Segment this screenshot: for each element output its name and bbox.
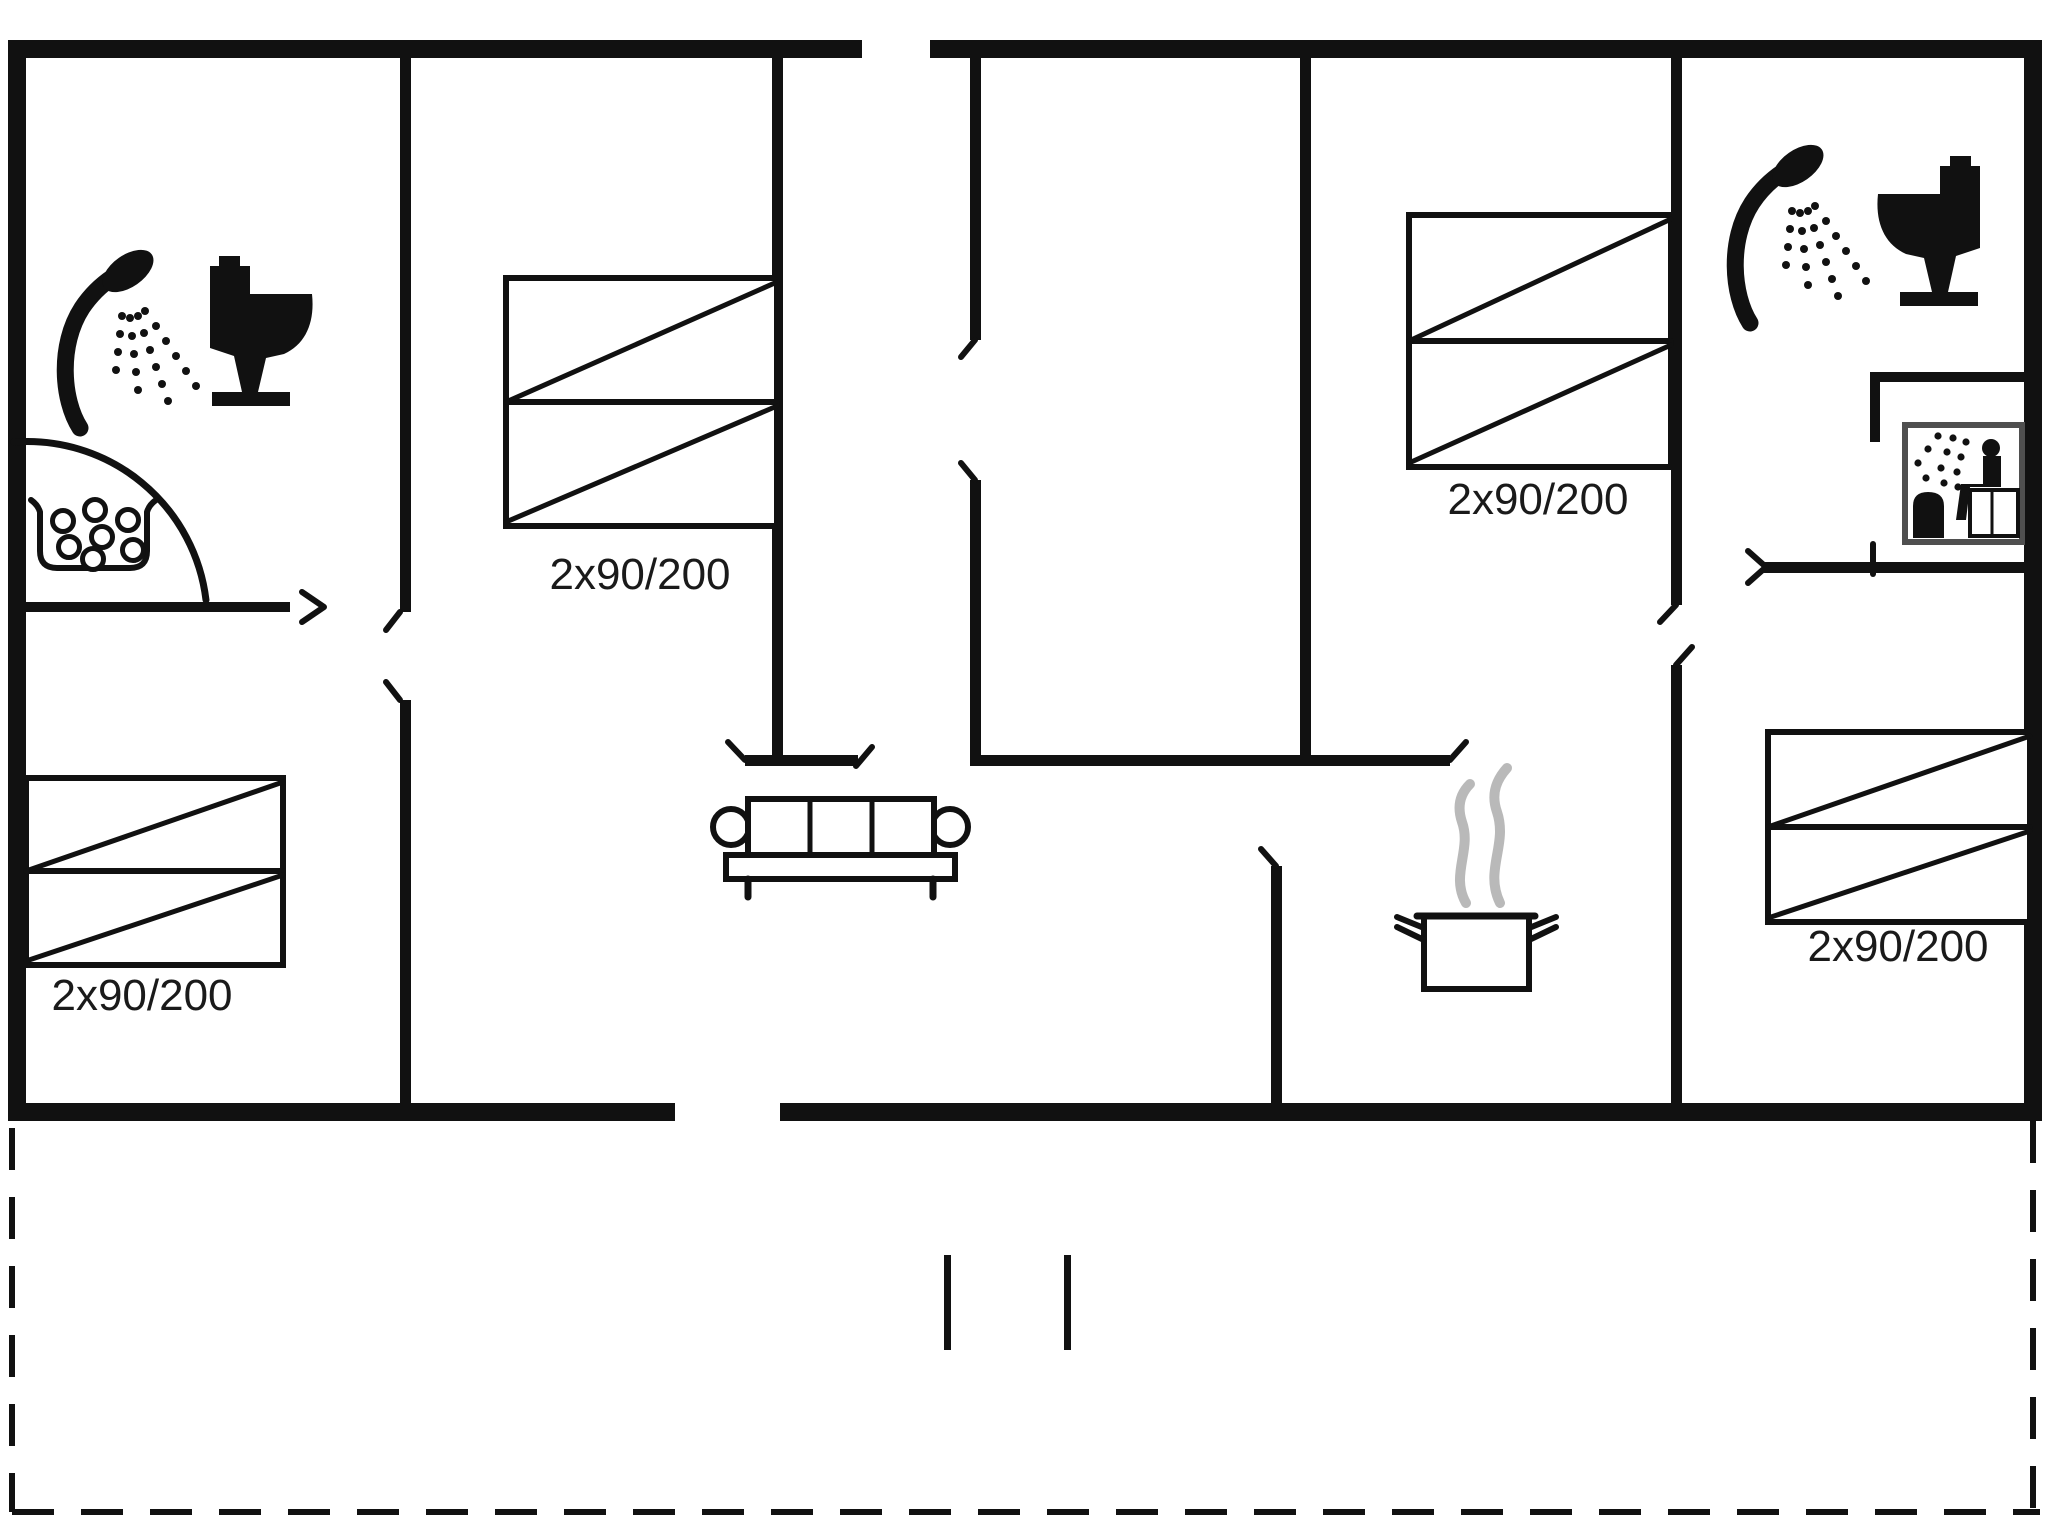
outer-wall-right xyxy=(2024,40,2042,1121)
outer-wall-top-left-segment xyxy=(8,40,862,58)
door-jamb-tick xyxy=(1748,551,1766,583)
door-jamb-tick xyxy=(1261,849,1276,866)
door-jamb-tick xyxy=(1450,742,1466,760)
bed-size-label: 2x90/200 xyxy=(1447,475,1628,524)
door-jamb-tick xyxy=(302,592,324,622)
steam-icon xyxy=(1460,784,1470,903)
whirlpool-bubble xyxy=(123,540,144,561)
sofa-arm-right xyxy=(932,809,968,845)
whirlpool-icon xyxy=(31,500,156,570)
bed-top-left: 2x90/200 xyxy=(506,278,777,599)
bed-bottom-right: 2x90/200 xyxy=(1768,732,2030,971)
terrace-step-mark xyxy=(1064,1255,1071,1350)
whirlpool-bubble xyxy=(83,549,104,570)
outer-walls xyxy=(8,40,2042,1121)
shower-icon xyxy=(1735,136,1870,323)
wall-hall-south-left xyxy=(745,755,858,766)
door-jamb-tick xyxy=(386,612,400,630)
sauna-person-head xyxy=(1982,439,2000,457)
sofa-icon xyxy=(713,799,968,897)
door-jamb-tick xyxy=(961,463,975,480)
floor-plan-canvas: 2x90/200 2x90/200 2x90/200 2x90/200 xyxy=(0,0,2048,1536)
wall-bedroom2-west xyxy=(1300,58,1311,766)
door-jamb-tick xyxy=(1676,647,1692,665)
sofa-seat xyxy=(726,855,955,879)
terrace-step-mark xyxy=(944,1255,951,1350)
bed-size-label: 2x90/200 xyxy=(51,971,232,1020)
pot-body xyxy=(1424,916,1529,989)
toilet-icon xyxy=(1877,156,1980,306)
wall-sauna-west-stub xyxy=(1870,372,1880,442)
wall-bedroom4-north xyxy=(1762,562,2042,573)
sauna-icon xyxy=(1905,425,2022,542)
bed-size-label: 2x90/200 xyxy=(549,550,730,599)
shower-icon xyxy=(65,241,200,428)
whirlpool-bubble xyxy=(53,511,74,532)
sofa-arm-left xyxy=(713,809,749,845)
toilet-icon xyxy=(210,256,313,406)
door-jamb-tick xyxy=(961,340,975,357)
wall-hall-south-right xyxy=(970,755,1450,766)
wall-kitchen-divider xyxy=(1271,866,1282,1110)
whirlpool-bubble xyxy=(59,537,80,558)
wall-bedroom3-east-lower xyxy=(400,700,411,1110)
wall-hall-divider-lower xyxy=(970,480,981,766)
wall-bathroom1-east-upper xyxy=(400,58,411,612)
door-jamb-tick xyxy=(856,747,872,766)
bed-bottom-left: 2x90/200 xyxy=(26,778,283,1020)
whirlpool-bubble xyxy=(118,510,139,531)
wall-sauna-north xyxy=(1870,372,2040,382)
wall-bathroom1-south xyxy=(26,602,290,612)
door-jamb-tick xyxy=(386,682,400,700)
sauna-bench xyxy=(1970,490,2018,536)
terrace-boundary xyxy=(12,1121,2040,1512)
bed-size-label: 2x90/200 xyxy=(1807,922,1988,971)
door-jamb-tick xyxy=(728,742,745,760)
wall-hall-divider-upper xyxy=(970,58,981,340)
wall-bedroom4-west xyxy=(1671,665,1682,1110)
sofa-back xyxy=(748,799,934,855)
outer-wall-top-right-segment xyxy=(930,40,2042,58)
door-jamb-tick xyxy=(1660,605,1676,622)
cooking-pot-icon xyxy=(1397,768,1556,989)
whirlpool-bubble xyxy=(85,500,106,521)
outer-wall-bottom-left-segment xyxy=(8,1103,675,1121)
steam-icon xyxy=(1494,768,1507,903)
floor-plan-page: 2x90/200 2x90/200 2x90/200 2x90/200 xyxy=(0,0,2048,1536)
bed-top-right: 2x90/200 xyxy=(1409,215,1671,524)
whirlpool-bubble xyxy=(92,527,113,548)
sauna-stove xyxy=(1913,492,1944,538)
outer-wall-bottom-right-segment xyxy=(780,1103,2042,1121)
